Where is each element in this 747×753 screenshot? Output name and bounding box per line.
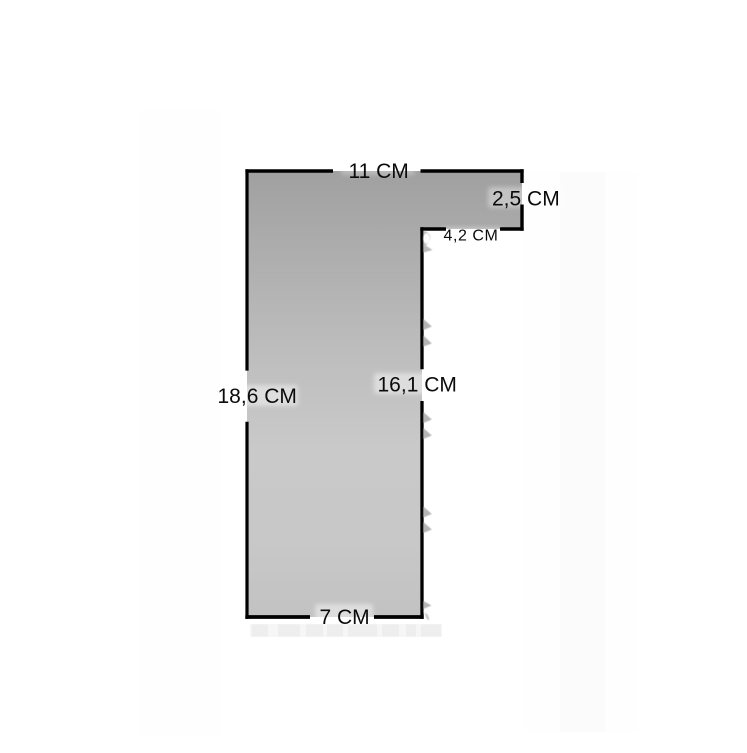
svg-text:7 CM: 7 CM <box>320 606 370 629</box>
svg-text:18,6 CM: 18,6 CM <box>218 385 297 408</box>
svg-text:4,2 CM: 4,2 CM <box>444 228 499 245</box>
svg-text:11 CM: 11 CM <box>349 160 409 183</box>
svg-text:2,5 CM: 2,5 CM <box>492 188 560 211</box>
svg-text:16,1 CM: 16,1 CM <box>378 373 457 396</box>
